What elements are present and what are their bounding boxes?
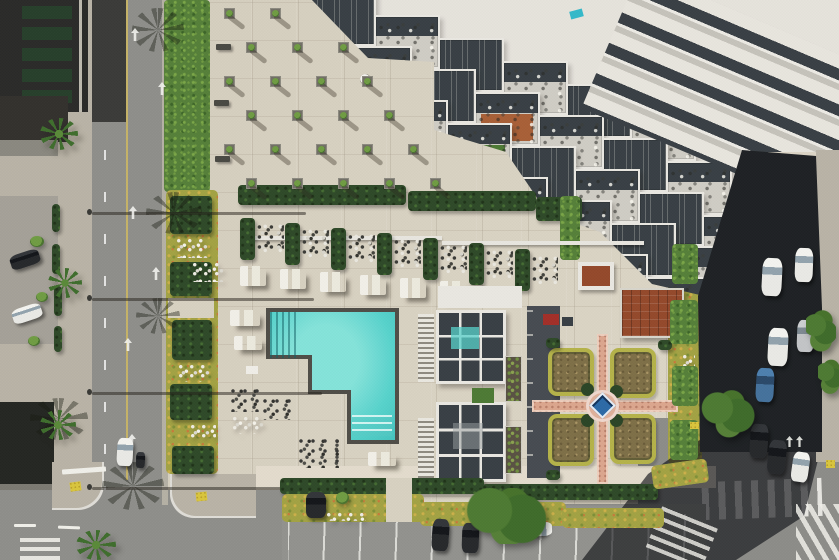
hedge-dark <box>172 320 212 360</box>
bench <box>215 156 230 162</box>
cluster-light <box>178 364 210 382</box>
hedge-dark <box>240 218 255 260</box>
tactile <box>69 481 81 491</box>
plaza-planter <box>224 144 235 155</box>
sharrow <box>152 267 160 280</box>
plaza-planter <box>384 178 395 189</box>
hedge-green <box>672 244 698 284</box>
car-white <box>10 302 43 326</box>
plaza-planter <box>246 42 257 53</box>
lounger-pair <box>368 452 396 466</box>
arrow <box>786 436 793 447</box>
rect <box>438 286 522 308</box>
lounger-pair <box>320 272 346 292</box>
cluster-light <box>326 512 366 521</box>
tactile <box>826 460 835 468</box>
cluster-light <box>190 424 216 440</box>
cluster-light <box>192 262 224 282</box>
plaza-planter <box>224 76 235 87</box>
shadow-line <box>92 392 322 395</box>
plaza-planter <box>292 42 303 53</box>
hedge-dark <box>377 233 392 275</box>
plaza-planter <box>430 178 441 189</box>
plaza-planter <box>292 110 303 121</box>
rust-box <box>578 262 614 290</box>
sharrow <box>158 82 166 95</box>
plaza-planter <box>408 144 419 155</box>
bench <box>216 44 231 50</box>
cluster-mix <box>257 224 284 254</box>
lounger-pair <box>400 278 426 298</box>
hedge-dark <box>515 249 530 291</box>
cluster-mix <box>348 234 375 264</box>
hedge-dark <box>469 243 484 285</box>
hedge-dark <box>423 238 438 280</box>
rect <box>386 478 412 522</box>
rect <box>246 366 258 374</box>
pole <box>87 209 92 215</box>
pole <box>87 389 92 395</box>
tactile <box>690 422 699 429</box>
tree <box>818 356 839 396</box>
car-dark <box>306 492 326 518</box>
rect <box>543 314 559 325</box>
lounger-pair <box>230 310 260 326</box>
hedge-green <box>560 196 580 260</box>
louvers <box>418 314 434 382</box>
cluster-mix <box>440 245 467 275</box>
tree <box>700 388 758 438</box>
aerial-photo: Aerial drone view of an urban apartment … <box>0 0 839 560</box>
plaza-planter <box>316 144 327 155</box>
shrub <box>30 236 44 247</box>
hedge-dark <box>54 326 62 352</box>
cluster-mix <box>394 239 421 269</box>
cluster-dark <box>262 398 292 420</box>
shrub <box>336 492 349 504</box>
plaza-planter <box>338 178 349 189</box>
tree <box>462 488 554 544</box>
cluster-dark <box>230 388 266 412</box>
car-white <box>767 328 789 367</box>
shadow-line <box>92 212 306 215</box>
hedge-dark <box>408 191 536 211</box>
paint-line <box>14 524 36 527</box>
planter-strip <box>505 426 522 474</box>
plaza-planter <box>270 144 281 155</box>
sharrow <box>124 338 132 351</box>
palm <box>40 410 76 440</box>
lounger-pair <box>280 269 306 289</box>
plaza-planter <box>384 110 395 121</box>
cluster-mix <box>302 229 329 259</box>
hedge-yellow <box>562 508 664 528</box>
car-dark <box>136 452 146 468</box>
car-white <box>790 451 811 483</box>
cluster-light <box>232 416 264 434</box>
hedge-dark <box>331 228 346 270</box>
plaza-planter <box>362 144 373 155</box>
cluster-mix <box>486 250 513 280</box>
car-dark <box>8 248 41 272</box>
tactile <box>196 491 208 501</box>
hedge-dark <box>285 223 300 265</box>
car-blue <box>755 368 775 403</box>
louvers <box>418 418 434 480</box>
car-dark <box>431 518 450 551</box>
bench <box>214 100 229 106</box>
lounger-pair <box>360 275 386 295</box>
cluster-light <box>176 238 210 258</box>
paint-line <box>62 466 106 474</box>
planter-strip <box>505 356 522 402</box>
palm <box>48 268 82 298</box>
car-dark <box>766 439 787 475</box>
plaza-planter <box>246 178 257 189</box>
plaza-planter <box>270 76 281 87</box>
hedge-dark <box>52 204 60 232</box>
cluster-dark <box>298 438 340 468</box>
plaza-planter <box>362 76 373 87</box>
plaza-planter <box>246 110 257 121</box>
plaza-planter <box>292 178 303 189</box>
rect <box>562 317 573 326</box>
tree <box>806 306 836 354</box>
plaza-planter <box>270 8 281 19</box>
arrow <box>796 436 803 447</box>
hedge-dark <box>546 470 560 480</box>
shrub <box>28 336 40 346</box>
car-white <box>794 248 813 283</box>
palm-shadow <box>132 8 184 52</box>
plaza-planter <box>224 8 235 19</box>
car-white <box>116 438 133 467</box>
hedge-dark <box>172 446 214 474</box>
paint-line <box>58 526 80 530</box>
hedge-yellow <box>651 458 710 490</box>
cluster-mix <box>532 256 558 284</box>
hedge-green <box>670 300 698 344</box>
palm <box>76 530 116 560</box>
palm <box>40 118 78 150</box>
car-white <box>761 258 783 297</box>
scene-items <box>0 0 839 560</box>
plaza-planter <box>338 110 349 121</box>
lounger-pair <box>234 336 262 350</box>
rect <box>569 8 584 19</box>
hedge-dark <box>170 384 212 420</box>
pole <box>87 484 92 490</box>
rect <box>472 388 494 403</box>
hedge-green <box>672 366 698 406</box>
plaza-planter <box>316 76 327 87</box>
palm-shadow <box>136 298 180 334</box>
plaza-planter <box>338 42 349 53</box>
shadow-line <box>92 298 314 301</box>
pole <box>87 295 92 301</box>
lounger-pair <box>240 266 266 286</box>
palm-shadow <box>102 462 164 510</box>
hedge-dark <box>546 338 560 348</box>
shrub <box>36 292 48 302</box>
